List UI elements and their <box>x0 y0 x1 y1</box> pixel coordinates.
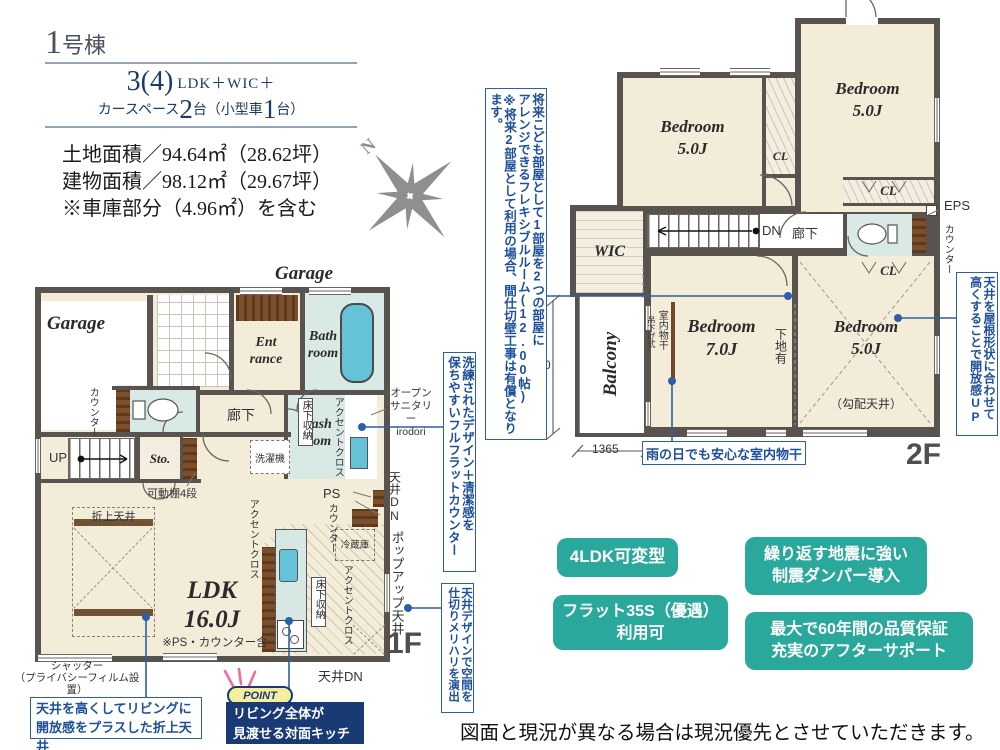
floor1-name: 1F <box>387 627 422 661</box>
ldk-note: ※PS・カウンター含 <box>147 635 283 648</box>
area-info: 土地面積／94.64㎡（28.62坪） 建物面積／98.12㎡（29.67坪） … <box>62 142 332 223</box>
hallway-2f-label: 廊下 <box>792 223 818 242</box>
note-folded-ceiling: 天井を高くしてリビングに 開放感をプラスした折上天井 <box>30 697 202 739</box>
badge-flat35s: フラット35S（優遇） 利用可 <box>553 595 728 650</box>
car-count: 2 <box>179 94 193 125</box>
car-pre: カースペース <box>98 99 180 119</box>
note-indoor-drying: 雨の日でも安心な室内物干 <box>642 441 806 465</box>
bedroom-sw-label: Bedroom 7.0J <box>651 310 792 366</box>
floor1-plan: 洗濯機 <box>35 287 390 662</box>
floor2-plan: Bedroom 5.0J Bedroom 5.0J CL CL CL DN 廊下… <box>570 10 942 437</box>
drying-type-label: 吊下げ式 <box>646 316 655 360</box>
badge-4ldk: 4LDK可変型 <box>557 538 678 577</box>
ceiling-dn-bottom-label: 天井DN <box>318 666 363 685</box>
building-title: 1号棟 <box>45 24 106 62</box>
drying-pole-label: 室内物干 <box>656 310 667 372</box>
stairs-up-label: UP <box>49 450 67 465</box>
divider-top <box>45 62 357 64</box>
building-suffix: 号棟 <box>62 33 106 58</box>
accent-cloth-kitchen: アクセントクロス <box>341 565 352 649</box>
badge-warranty: 最大で60年間の品質保証 充実のアフターサポート <box>745 612 973 670</box>
accent-cloth-wash: アクセントクロス <box>332 397 343 481</box>
closet-mid-label: CL <box>766 148 795 164</box>
floorplan-flyer: 1号棟 3(4) LDK＋WIC＋ カースペース 2 台（小型車 1 台） 土地… <box>0 0 1000 750</box>
eps-label: EPS <box>944 198 970 213</box>
dim-width-label: 1365 <box>592 442 619 456</box>
closet-right-top-label: CL <box>843 179 934 203</box>
note-flat-counter: 洗練されたデザイン＋清潔感を 保ちやすいフルフラットカウンター <box>443 352 476 572</box>
bathroom-label: Bath room <box>303 319 343 371</box>
layout-rest: LDK＋WIC＋ <box>177 72 275 93</box>
fridge-label: 冷蔵庫 <box>336 537 374 551</box>
backing-label: 下地有 <box>773 328 786 380</box>
bedroom-ne-label: Bedroom 5.0J <box>801 72 934 128</box>
garage-top-label: Garage <box>275 263 333 285</box>
divider-bottom <box>45 126 357 128</box>
underfloor-storage-kitchen: 床下収納 <box>311 577 326 627</box>
floor2-name: 2F <box>906 438 941 472</box>
counter-2f-label: カウンター <box>942 224 953 280</box>
shutter-label: シャッター （プライバシーフィルム設置） <box>7 665 147 691</box>
garage-left-label: Garage <box>47 313 105 335</box>
wic-label: WIC <box>576 242 643 262</box>
kitchen-counter-label: カウンター <box>326 503 337 555</box>
note-open-feel: 天井を屋根形状に合わせて 高くすることで開放感UP <box>956 272 998 436</box>
shelf-label: 可動棚4段 <box>147 485 197 501</box>
car-mid: 台（小型車 <box>193 99 263 119</box>
car-end: 台） <box>276 99 304 119</box>
ps-label: PS <box>323 486 340 501</box>
sloped-ceiling-label: （勾配天井） <box>798 396 934 411</box>
underfloor-storage-wash: 床下収納 <box>298 398 313 446</box>
badge-damper: 繰り返す地震に強い 制震ダンパー導入 <box>745 537 927 595</box>
disclaimer: 図面と現況が異なる場合は現況優先とさせていただきます。 <box>460 716 985 745</box>
car-space-spec: カースペース 2 台（小型車 1 台） <box>45 94 357 124</box>
open-sanitary-label: オープン サニタリー irodori <box>385 387 437 440</box>
note-flexible-room: 将来こども部屋として1部屋を2つの部屋に アレンジできるフレキシブルルーム(12… <box>485 88 547 440</box>
entrance-label: Ent rance <box>234 325 298 377</box>
point-text: リビング全体が 見渡せる対面キッチン <box>226 702 364 744</box>
hallway-label: 廊下 <box>227 405 255 425</box>
bedroom-nw-label: Bedroom 5.0J <box>623 110 762 166</box>
folded-ceiling-label: 折上天井 <box>75 509 152 522</box>
storage-label: Sto. <box>140 445 180 473</box>
closet-right-bottom-label: CL <box>843 259 934 283</box>
car-small-count: 1 <box>263 94 277 125</box>
note-ceiling-zoning: 天井デザインで空間を 仕切りメリハリを演出 <box>441 583 474 713</box>
building-number: 1 <box>45 24 62 61</box>
toilet-counter-label: カウンター <box>87 387 98 477</box>
ldk-label: LDK 16.0J <box>165 575 259 637</box>
dn-label: DN <box>762 223 781 238</box>
ceiling-dn-right-label: 天井DN <box>387 471 400 525</box>
bedroom-se-label: Bedroom 5.0J <box>798 310 934 366</box>
balcony-label: Balcony <box>591 309 631 419</box>
